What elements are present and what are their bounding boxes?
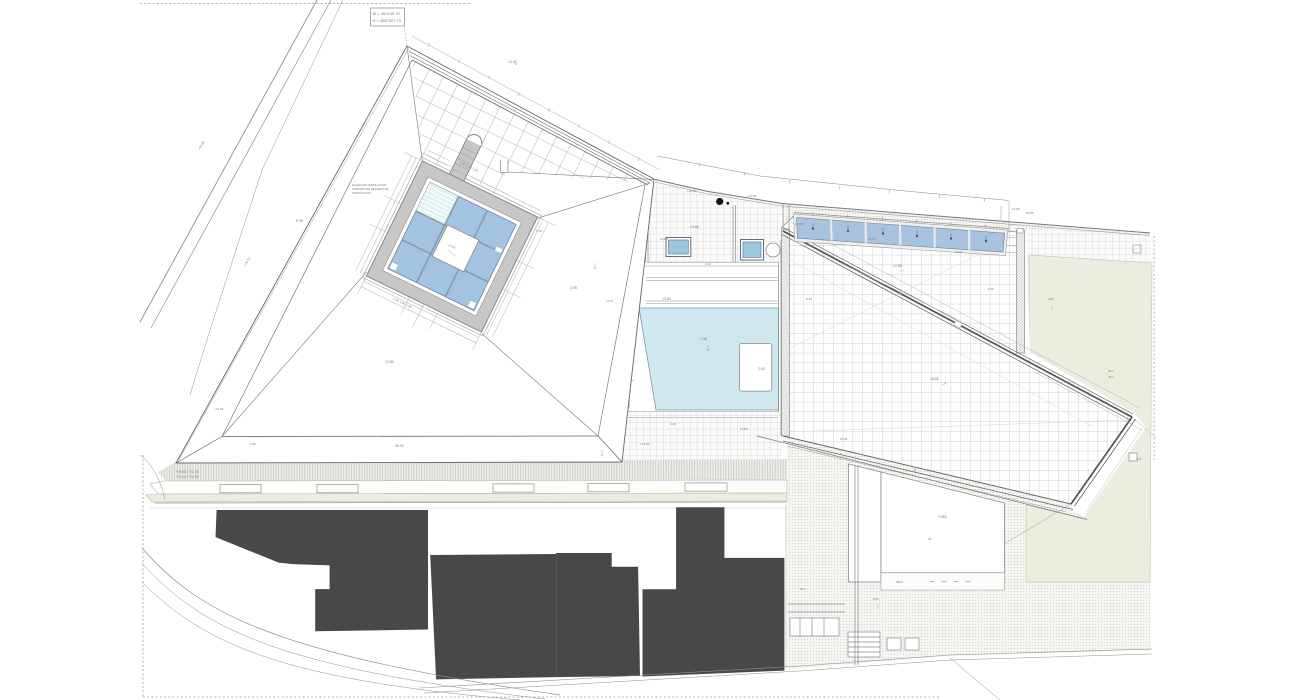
svg-text:36: 36: [913, 468, 917, 472]
svg-text:29.1: 29.1: [1108, 369, 1114, 373]
svg-text:13.67: 13.67: [955, 250, 963, 254]
svg-text:8.01: 8.01: [873, 597, 879, 601]
svg-text:38.02: 38.02: [395, 444, 404, 448]
svg-text:+76.05: +76.05: [747, 194, 757, 198]
svg-text:15.01: 15.01: [840, 437, 848, 441]
svg-text:14.06: 14.06: [795, 222, 803, 226]
svg-text:13.67: 13.67: [868, 237, 876, 241]
svg-text:+74.06: +74.06: [214, 407, 224, 411]
svg-text:14.67: 14.67: [508, 60, 517, 64]
svg-text:5.18: 5.18: [536, 229, 542, 233]
svg-text:+74.05 / +74.76: +74.05 / +74.76: [176, 470, 199, 474]
svg-text:12.80: 12.80: [893, 264, 902, 268]
svg-text:16.85: 16.85: [1026, 211, 1034, 215]
svg-text:36.1: 36.1: [800, 587, 806, 591]
svg-text:+74.12 / +74.75: +74.12 / +74.75: [176, 475, 199, 479]
svg-text:9.18: 9.18: [988, 287, 994, 291]
svg-text:9822: 9822: [896, 580, 903, 584]
svg-text:13.84: 13.84: [662, 297, 671, 301]
svg-text:9.18: 9.18: [806, 297, 812, 301]
svg-text:4.87: 4.87: [1048, 297, 1054, 301]
svg-text:H = 4587527.70: H = 4587527.70: [373, 18, 402, 23]
svg-text:VENTILACION: VENTILACION: [352, 191, 371, 195]
svg-text:12.80: 12.80: [740, 427, 748, 431]
svg-text:1.98: 1.98: [700, 337, 707, 341]
svg-text:1.05: 1.05: [250, 442, 256, 446]
svg-text:4.40: 4.40: [670, 422, 676, 426]
svg-text:3.95: 3.95: [570, 286, 577, 290]
svg-text:1.8: 1.8: [1137, 457, 1142, 461]
svg-text:36: 36: [928, 537, 932, 541]
svg-text:+76.06: +76.06: [687, 189, 697, 193]
svg-text:2.63: 2.63: [758, 367, 765, 371]
svg-text:11.57: 11.57: [606, 299, 614, 303]
svg-text:W = 400145.70: W = 400145.70: [373, 11, 401, 16]
svg-text:+74.05: +74.05: [640, 442, 650, 446]
svg-text:9.45: 9.45: [296, 219, 303, 223]
svg-text:15.85: 15.85: [930, 377, 939, 381]
svg-text:13.68: 13.68: [690, 225, 699, 229]
svg-text:12.80: 12.80: [385, 360, 394, 364]
svg-text:78.1: 78.1: [1108, 375, 1114, 379]
svg-text:14.85: 14.85: [1012, 207, 1020, 211]
svg-text:13.68: 13.68: [660, 237, 668, 241]
svg-text:2.12: 2.12: [705, 262, 711, 266]
svg-text:2.563: 2.563: [938, 515, 947, 519]
